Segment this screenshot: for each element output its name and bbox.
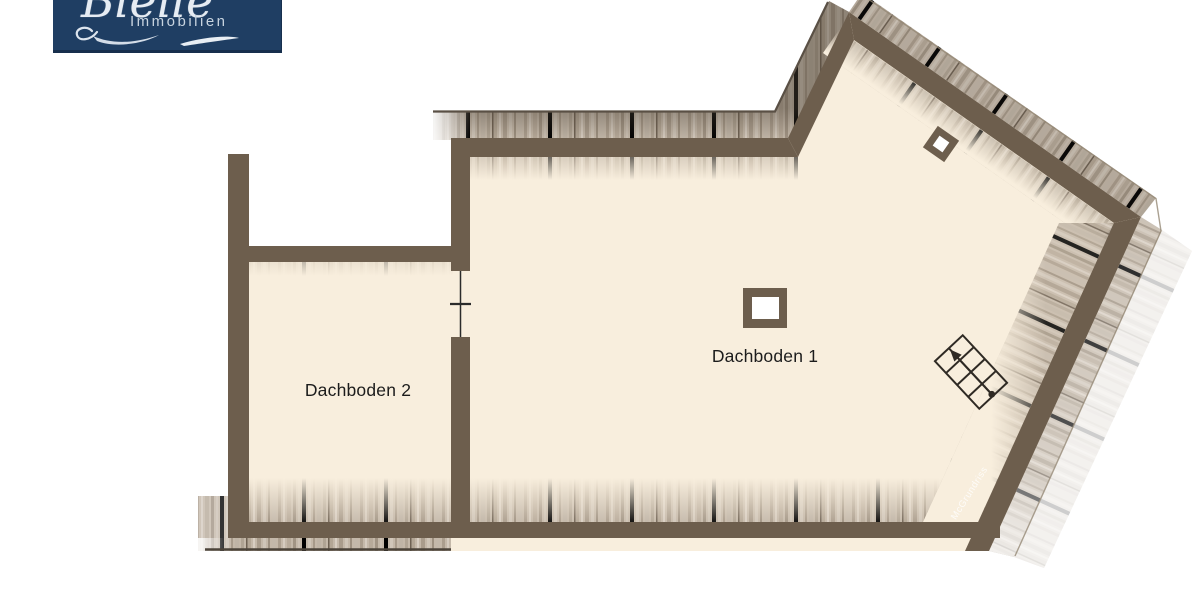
ceiling-slope-hatch-bottom <box>249 478 985 522</box>
wall-bottom <box>228 522 1000 538</box>
wall-left <box>228 154 249 538</box>
chimney-icon <box>743 288 787 328</box>
wall-room2-top <box>228 246 458 262</box>
wall-partition-upper <box>451 138 470 271</box>
wall-partition-lower <box>451 337 470 527</box>
roof-edge-line-top <box>433 2 828 112</box>
company-logo: Bleile Immobilien <box>53 0 282 53</box>
roof-hatch-top-band <box>433 1 851 140</box>
logo-subtitle: Immobilien <box>130 13 228 30</box>
page: { "logo": { "script_text": "Bleile", "su… <box>0 0 1200 600</box>
floorplan-canvas <box>0 0 1200 600</box>
wall-top <box>451 138 798 157</box>
